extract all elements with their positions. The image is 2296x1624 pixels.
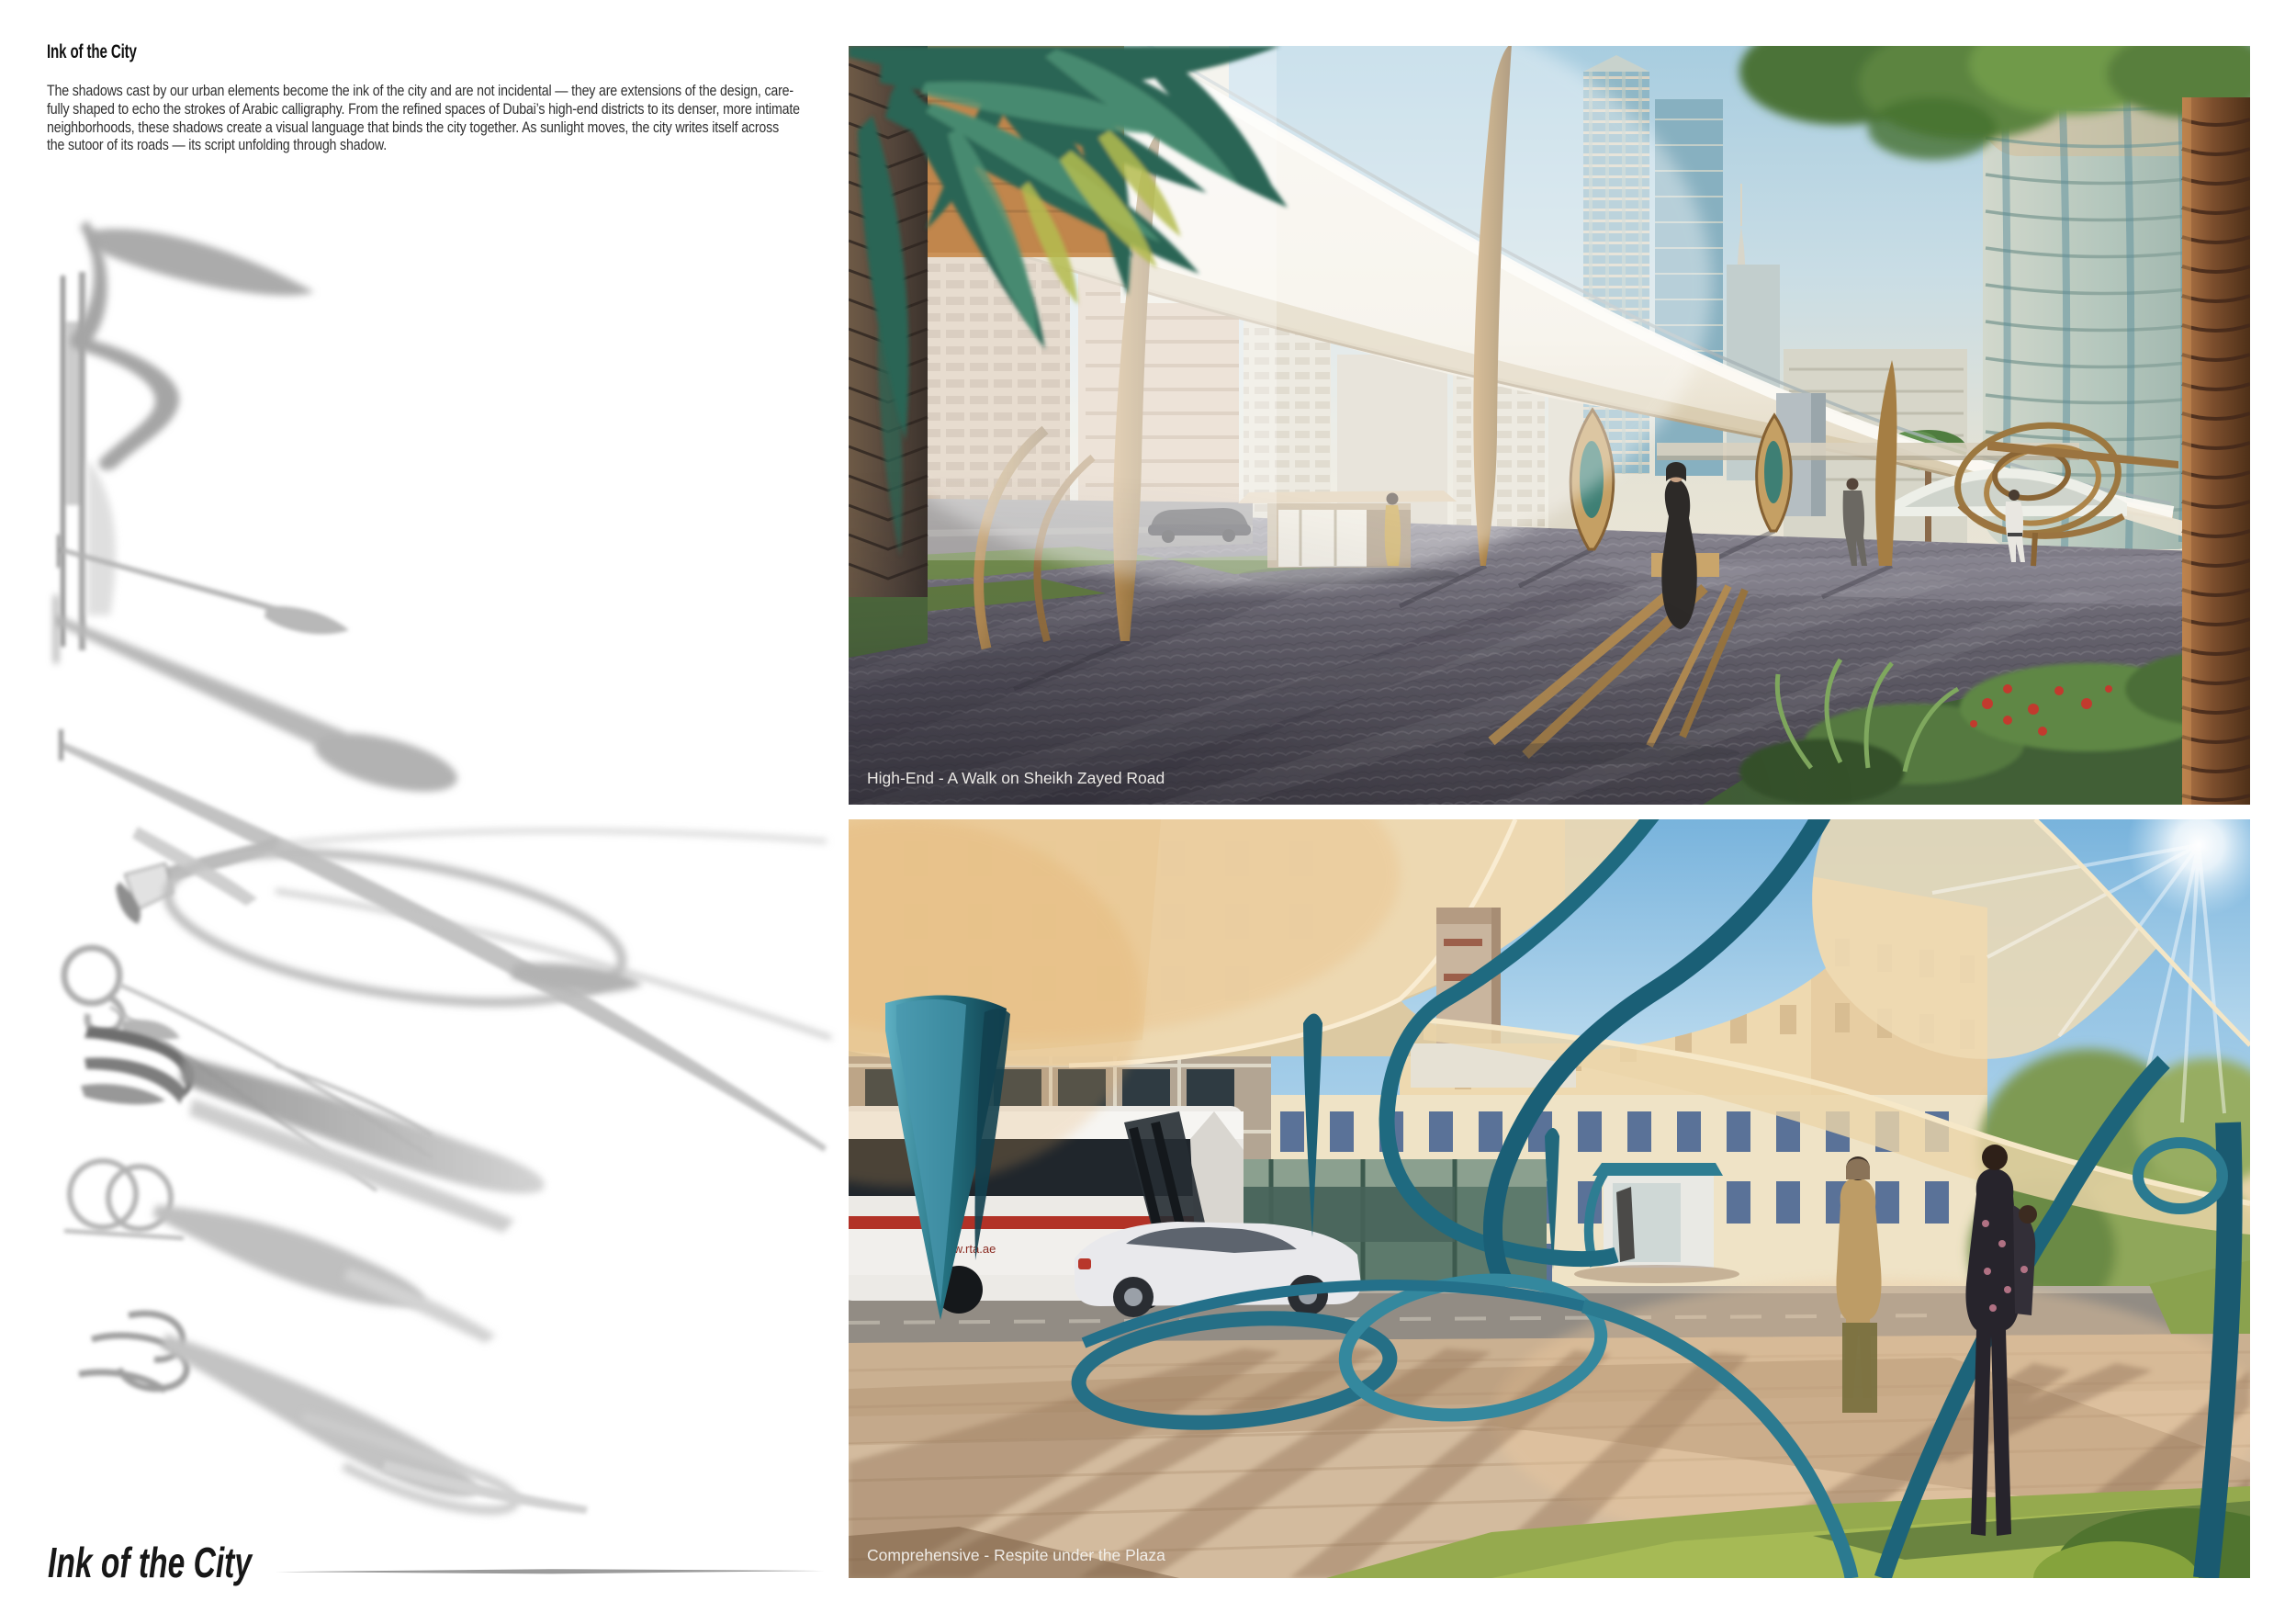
svg-text:High-End - A Walk on Sheikh Za: High-End - A Walk on Sheikh Zayed Road	[867, 769, 1165, 787]
svg-text:Comprehensive - Respite under: Comprehensive - Respite under the Plaza	[867, 1546, 1165, 1564]
